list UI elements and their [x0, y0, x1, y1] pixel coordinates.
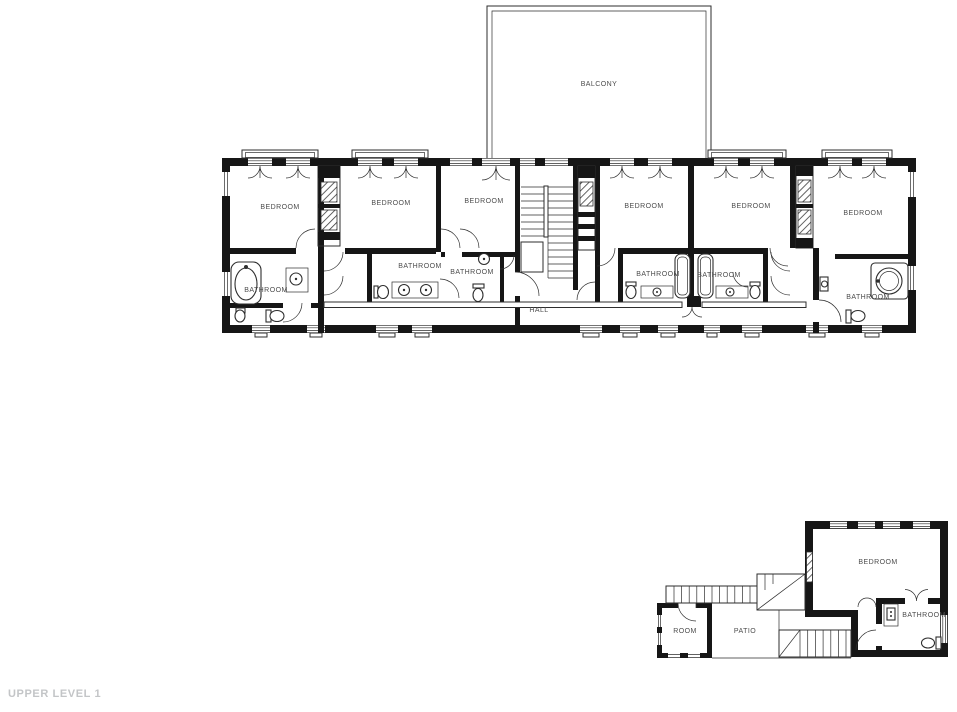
room-label-bedroom-3: BEDROOM [464, 198, 503, 205]
toilet-3 [473, 284, 484, 302]
room-label-bedroom-2: BEDROOM [371, 200, 410, 207]
room-label-bedroom-1: BEDROOM [260, 204, 299, 211]
room-label-guest-bathroom: BATHROOM [902, 612, 946, 619]
window-bays [242, 150, 892, 158]
floor-plan-page: BALCONYBEDROOMBEDROOMBEDROOMBEDROOMBEDRO… [0, 0, 957, 712]
room-label-guest-bedroom: BEDROOM [858, 559, 897, 566]
room-label-patio: PATIO [734, 628, 756, 635]
toilet-6 [846, 310, 865, 323]
room-label-bathroom-2: BATHROOM [398, 263, 442, 270]
room-label-room: ROOM [673, 628, 697, 635]
guest-suite-windows [830, 522, 947, 643]
room-label-bathroom-3: BATHROOM [450, 269, 494, 276]
guest-bathroom-fixtures [884, 604, 941, 649]
room-label-hall: HALL [529, 307, 548, 314]
main-staircase [521, 186, 573, 278]
room-label-bathroom-5: BATHROOM [697, 272, 741, 279]
bathtub-1 [231, 262, 261, 304]
toilet-5 [750, 282, 760, 299]
toilet-2 [374, 286, 389, 299]
room-label-balcony: BALCONY [581, 81, 618, 88]
room-label-bedroom-4: BEDROOM [624, 203, 663, 210]
bidet-1 [235, 308, 245, 322]
guest-suite-walls [805, 521, 948, 657]
room-label-bedroom-6: BEDROOM [843, 210, 882, 217]
plan-title: UPPER LEVEL 1 [8, 688, 101, 700]
room-label-bathroom-1: BATHROOM [244, 287, 288, 294]
room-label-bathroom-6: BATHROOM [846, 294, 890, 301]
toilet-1 [266, 310, 284, 322]
toilet-4 [626, 282, 636, 299]
room-label-bathroom-4: BATHROOM [636, 271, 680, 278]
floor-plan-drawing: BALCONYBEDROOMBEDROOMBEDROOMBEDROOMBEDRO… [0, 0, 957, 712]
room-label-bedroom-5: BEDROOM [731, 203, 770, 210]
